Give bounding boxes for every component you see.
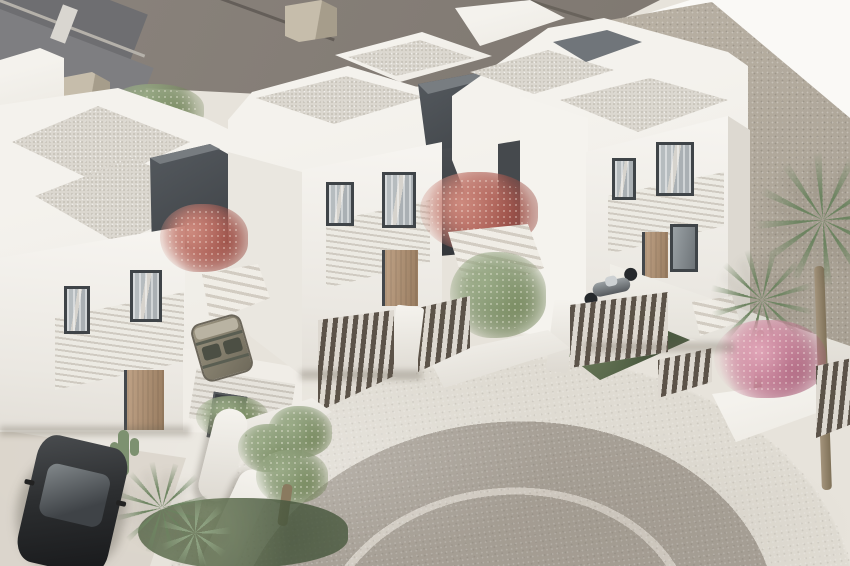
window: [64, 286, 90, 334]
olive-foliage: [256, 450, 328, 504]
entry-door: [124, 370, 164, 430]
window-glass: [67, 289, 87, 331]
window: [326, 182, 354, 226]
slatted-fence: [814, 358, 850, 438]
chimney: [285, 0, 337, 42]
glass-door: [670, 224, 698, 272]
window-glass: [615, 161, 633, 197]
window: [612, 158, 636, 200]
window-glass: [329, 185, 351, 223]
agave-plant: [150, 496, 240, 566]
aerial-render: [0, 0, 850, 566]
pink-bougainvillea: [714, 320, 826, 398]
window-glass: [385, 175, 413, 225]
entry-door: [642, 232, 668, 278]
bougainvillea-pergola: [160, 204, 248, 272]
window: [656, 142, 694, 196]
window-glass: [133, 273, 159, 319]
window-glass: [659, 145, 691, 193]
entry-door: [382, 250, 418, 306]
ground-shadow: [300, 370, 422, 380]
window: [130, 270, 162, 322]
window: [382, 172, 416, 228]
ground-shadow: [584, 342, 734, 352]
